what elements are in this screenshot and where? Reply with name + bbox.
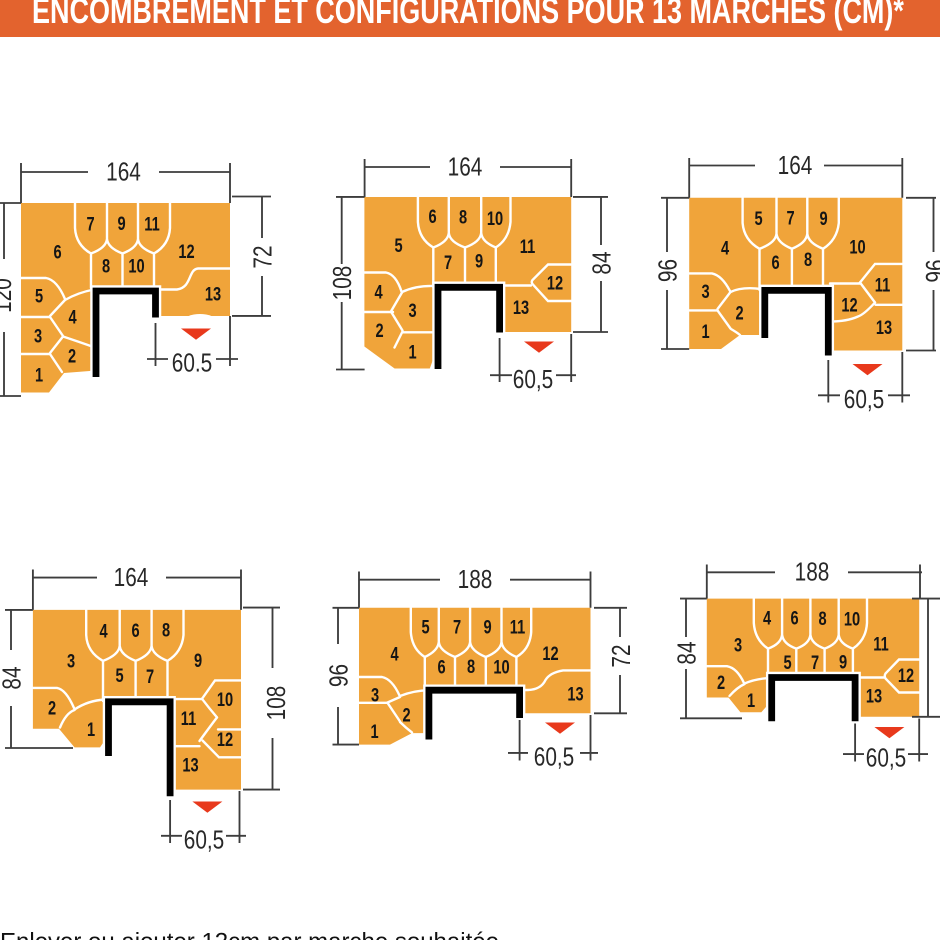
svg-text:84: 84 <box>672 641 701 664</box>
svg-text:ENCOMBREMENT ET CONFIGURATIONS: ENCOMBREMENT ET CONFIGURATIONS POUR 13 M… <box>32 0 904 31</box>
svg-text:8: 8 <box>818 607 826 630</box>
svg-text:13: 13 <box>182 754 198 777</box>
svg-text:84: 84 <box>587 251 616 274</box>
svg-text:6: 6 <box>131 619 139 642</box>
svg-text:9: 9 <box>194 649 202 672</box>
svg-text:13: 13 <box>205 283 221 306</box>
svg-text:60,5: 60,5 <box>844 385 884 414</box>
svg-text:164: 164 <box>106 157 141 186</box>
svg-text:164: 164 <box>778 151 813 180</box>
svg-text:60,5: 60,5 <box>866 744 906 773</box>
svg-text:2: 2 <box>48 697 56 720</box>
svg-text:7: 7 <box>86 213 94 236</box>
svg-text:12: 12 <box>542 642 558 665</box>
svg-text:12: 12 <box>547 272 563 295</box>
svg-text:96: 96 <box>653 259 682 282</box>
svg-text:8: 8 <box>162 619 170 642</box>
svg-text:11: 11 <box>510 616 526 639</box>
svg-text:7: 7 <box>786 207 794 230</box>
svg-text:2: 2 <box>735 302 743 325</box>
svg-text:5: 5 <box>115 664 123 687</box>
svg-text:2: 2 <box>402 704 410 727</box>
svg-text:11: 11 <box>181 707 197 730</box>
svg-text:9: 9 <box>117 212 125 235</box>
svg-text:8: 8 <box>467 655 475 678</box>
svg-text:9: 9 <box>475 250 483 273</box>
svg-text:60,5: 60,5 <box>534 742 574 771</box>
svg-text:5: 5 <box>35 285 43 308</box>
svg-text:72: 72 <box>248 245 277 268</box>
svg-text:164: 164 <box>114 563 149 592</box>
svg-text:10: 10 <box>128 255 144 278</box>
svg-text:3: 3 <box>408 299 416 322</box>
svg-text:5: 5 <box>394 234 402 257</box>
svg-text:3: 3 <box>67 650 75 673</box>
svg-text:8: 8 <box>102 255 110 278</box>
svg-text:7: 7 <box>453 616 461 639</box>
svg-text:2: 2 <box>375 319 383 342</box>
svg-text:5: 5 <box>754 207 762 230</box>
svg-text:72: 72 <box>607 644 636 667</box>
svg-text:96: 96 <box>921 259 940 282</box>
svg-text:12: 12 <box>898 664 914 687</box>
svg-text:188: 188 <box>458 565 493 594</box>
svg-text:5: 5 <box>421 616 429 639</box>
svg-text:9: 9 <box>483 616 491 639</box>
svg-text:11: 11 <box>520 235 536 258</box>
svg-text:1: 1 <box>747 689 755 712</box>
svg-text:60,5: 60,5 <box>184 825 224 854</box>
svg-text:11: 11 <box>875 273 891 296</box>
svg-text:4: 4 <box>68 306 76 329</box>
svg-text:1: 1 <box>370 720 378 743</box>
svg-text:13: 13 <box>513 296 529 319</box>
svg-text:11: 11 <box>144 213 160 236</box>
svg-text:9: 9 <box>819 207 827 230</box>
svg-text:1: 1 <box>35 364 43 387</box>
svg-text:10: 10 <box>217 688 233 711</box>
svg-text:12: 12 <box>841 294 857 317</box>
svg-text:84: 84 <box>0 666 26 689</box>
svg-text:7: 7 <box>444 251 452 274</box>
svg-text:7: 7 <box>811 651 819 674</box>
svg-text:4: 4 <box>721 237 729 260</box>
svg-text:11: 11 <box>873 633 889 656</box>
svg-text:3: 3 <box>701 280 709 303</box>
svg-text:4: 4 <box>763 607 771 630</box>
svg-text:Enlever ou ajouter 12cm par ma: Enlever ou ajouter 12cm par marche souha… <box>0 929 499 940</box>
svg-text:10: 10 <box>487 207 503 230</box>
svg-text:1: 1 <box>87 718 95 741</box>
svg-text:1: 1 <box>701 320 709 343</box>
svg-text:120: 120 <box>0 278 16 313</box>
svg-text:4: 4 <box>374 281 382 304</box>
svg-text:10: 10 <box>844 608 860 631</box>
svg-text:6: 6 <box>53 241 61 264</box>
svg-text:8: 8 <box>459 206 467 229</box>
svg-text:9: 9 <box>839 651 847 674</box>
svg-text:6: 6 <box>771 251 779 274</box>
svg-text:60.5: 60.5 <box>172 348 212 377</box>
svg-text:6: 6 <box>790 607 798 630</box>
svg-text:3: 3 <box>34 325 42 348</box>
svg-text:8: 8 <box>804 248 812 271</box>
svg-text:7: 7 <box>146 665 154 688</box>
svg-text:13: 13 <box>567 683 583 706</box>
svg-text:13: 13 <box>866 685 882 708</box>
svg-text:1: 1 <box>408 341 416 364</box>
svg-text:13: 13 <box>876 316 892 339</box>
svg-text:108: 108 <box>262 686 291 721</box>
svg-text:4: 4 <box>99 620 107 643</box>
svg-text:12: 12 <box>178 240 194 263</box>
svg-text:60,5: 60,5 <box>513 365 553 394</box>
svg-text:4: 4 <box>390 643 398 666</box>
svg-text:108: 108 <box>328 266 357 301</box>
svg-text:2: 2 <box>68 345 76 368</box>
svg-text:6: 6 <box>437 656 445 679</box>
svg-text:10: 10 <box>493 656 509 679</box>
svg-text:5: 5 <box>783 651 791 674</box>
svg-text:3: 3 <box>734 634 742 657</box>
svg-text:10: 10 <box>849 236 865 259</box>
svg-text:6: 6 <box>428 205 436 228</box>
svg-text:164: 164 <box>448 152 483 181</box>
svg-text:188: 188 <box>795 557 830 586</box>
svg-text:96: 96 <box>324 664 353 687</box>
svg-text:2: 2 <box>717 671 725 694</box>
svg-text:3: 3 <box>371 684 379 707</box>
svg-text:12: 12 <box>217 728 233 751</box>
